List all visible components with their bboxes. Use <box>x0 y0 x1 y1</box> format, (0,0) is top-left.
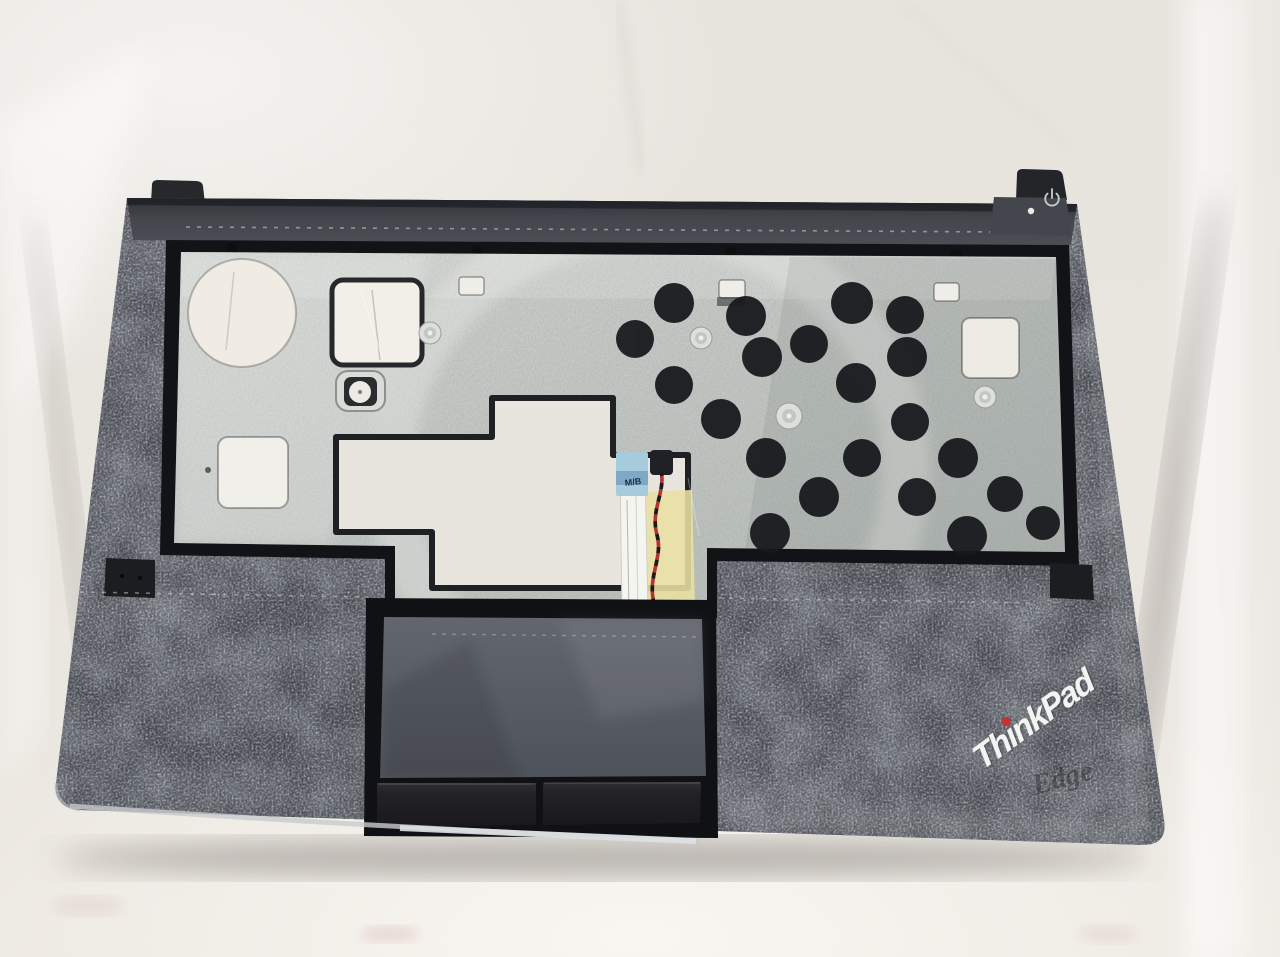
fabric-stain <box>360 926 420 942</box>
right-hinge-tab <box>1016 169 1067 200</box>
slot-cutout <box>934 283 959 301</box>
fabric-stain <box>52 896 124 916</box>
square-cutout <box>332 280 422 365</box>
kapton-tape <box>641 490 695 612</box>
shadow-bottom <box>55 838 1145 878</box>
fabric-crease <box>618 0 642 170</box>
round-speaker-hole <box>188 259 296 367</box>
touchpad-right-button <box>543 782 701 825</box>
square-cutout-left <box>218 437 288 508</box>
latch-cutout <box>336 371 385 411</box>
fabric-highlight-band <box>1185 0 1245 957</box>
power-button-tab <box>990 197 1072 236</box>
touchpad-left-button <box>377 783 536 827</box>
photo-scene: ThinkPad Edge M/B <box>0 0 1280 957</box>
right-frame-step <box>1050 563 1094 600</box>
fabric-stain <box>1078 925 1138 943</box>
fabric-crease <box>898 0 1072 150</box>
slot-cutout <box>459 277 484 295</box>
small-screw-hole <box>205 467 211 473</box>
slot-cutout <box>719 280 745 298</box>
frame-step-hole <box>120 574 124 578</box>
square-cutout-right <box>962 318 1019 378</box>
led-dot <box>1028 208 1034 214</box>
frame-step-hole <box>138 576 142 580</box>
left-frame-step <box>104 558 155 598</box>
